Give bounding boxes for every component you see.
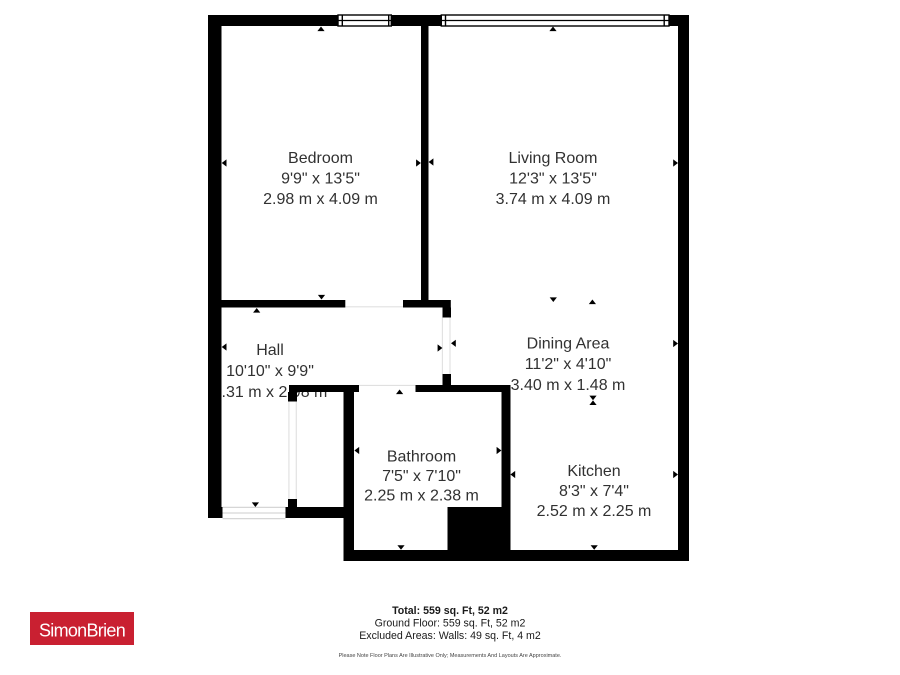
svg-text:2.98 m x 4.09 m: 2.98 m x 4.09 m [263, 191, 378, 208]
svg-text:2.52 m x 2.25 m: 2.52 m x 2.25 m [537, 503, 652, 520]
svg-text:Bathroom: Bathroom [387, 449, 456, 466]
svg-text:Living Room: Living Room [509, 150, 598, 167]
svg-text:2.25 m x 2.38 m: 2.25 m x 2.38 m [364, 488, 479, 505]
svg-text:Dining Area: Dining Area [527, 336, 610, 353]
svg-text:Excluded Areas: Walls: 49 sq.: Excluded Areas: Walls: 49 sq. Ft, 4 m2 [359, 630, 541, 642]
svg-text:9'9" x 13'5": 9'9" x 13'5" [281, 171, 360, 188]
svg-text:Bedroom: Bedroom [288, 150, 353, 167]
svg-text:3.74 m x 4.09 m: 3.74 m x 4.09 m [496, 191, 611, 208]
svg-text:Please Note Floor Plans Are Il: Please Note Floor Plans Are Illustrative… [339, 653, 562, 659]
svg-text:12'3" x 13'5": 12'3" x 13'5" [509, 171, 597, 188]
svg-text:Hall: Hall [256, 342, 284, 359]
svg-text:11'2" x 4'10": 11'2" x 4'10" [525, 356, 612, 373]
svg-text:SimonBrien: SimonBrien [39, 621, 125, 641]
svg-text:Total: 559 sq. Ft, 52 m2: Total: 559 sq. Ft, 52 m2 [392, 605, 508, 617]
svg-text:3.40 m x 1.48 m: 3.40 m x 1.48 m [511, 377, 626, 394]
svg-text:8'3" x 7'4": 8'3" x 7'4" [559, 483, 629, 500]
svg-text:10'10" x 9'9": 10'10" x 9'9" [226, 363, 314, 380]
svg-text:7'5" x 7'10": 7'5" x 7'10" [382, 468, 461, 485]
svg-text:Ground Floor: 559 sq. Ft, 52 m: Ground Floor: 559 sq. Ft, 52 m2 [375, 618, 526, 630]
svg-text:Kitchen: Kitchen [567, 463, 620, 480]
